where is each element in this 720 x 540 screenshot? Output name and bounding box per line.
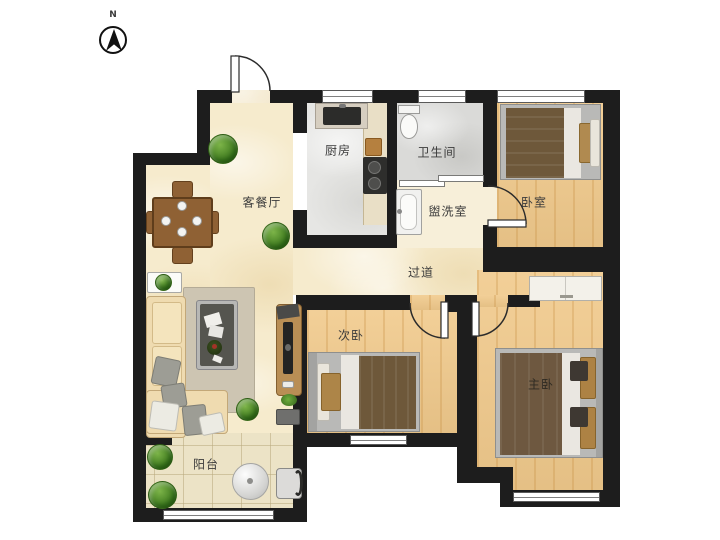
room-label-washroom: 盥洗室 — [428, 203, 467, 220]
door-panel — [488, 220, 526, 227]
door-arc — [475, 303, 508, 336]
door-overlay — [0, 0, 720, 540]
door-panel — [441, 302, 448, 338]
floor-plan: N 客餐厅 厨房 卫生间 卧室 盥洗室 过道 次卧 主卧 阳台 — [0, 0, 720, 540]
room-label-balcony: 阳台 — [193, 456, 219, 473]
door-panel — [231, 56, 239, 92]
room-label-bedroom: 卧室 — [521, 194, 547, 211]
door-arc — [410, 303, 445, 338]
room-label-kitchen: 厨房 — [325, 142, 351, 159]
room-label-master-bedroom: 主卧 — [528, 376, 554, 393]
room-label-corridor: 过道 — [408, 264, 434, 281]
compass-north-label: N — [109, 10, 117, 20]
door-arc — [235, 56, 270, 91]
room-label-living-dining: 客餐厅 — [242, 194, 281, 211]
room-label-second-bedroom: 次卧 — [338, 327, 364, 344]
door-panel — [472, 302, 479, 336]
room-label-bathroom: 卫生间 — [417, 144, 456, 161]
